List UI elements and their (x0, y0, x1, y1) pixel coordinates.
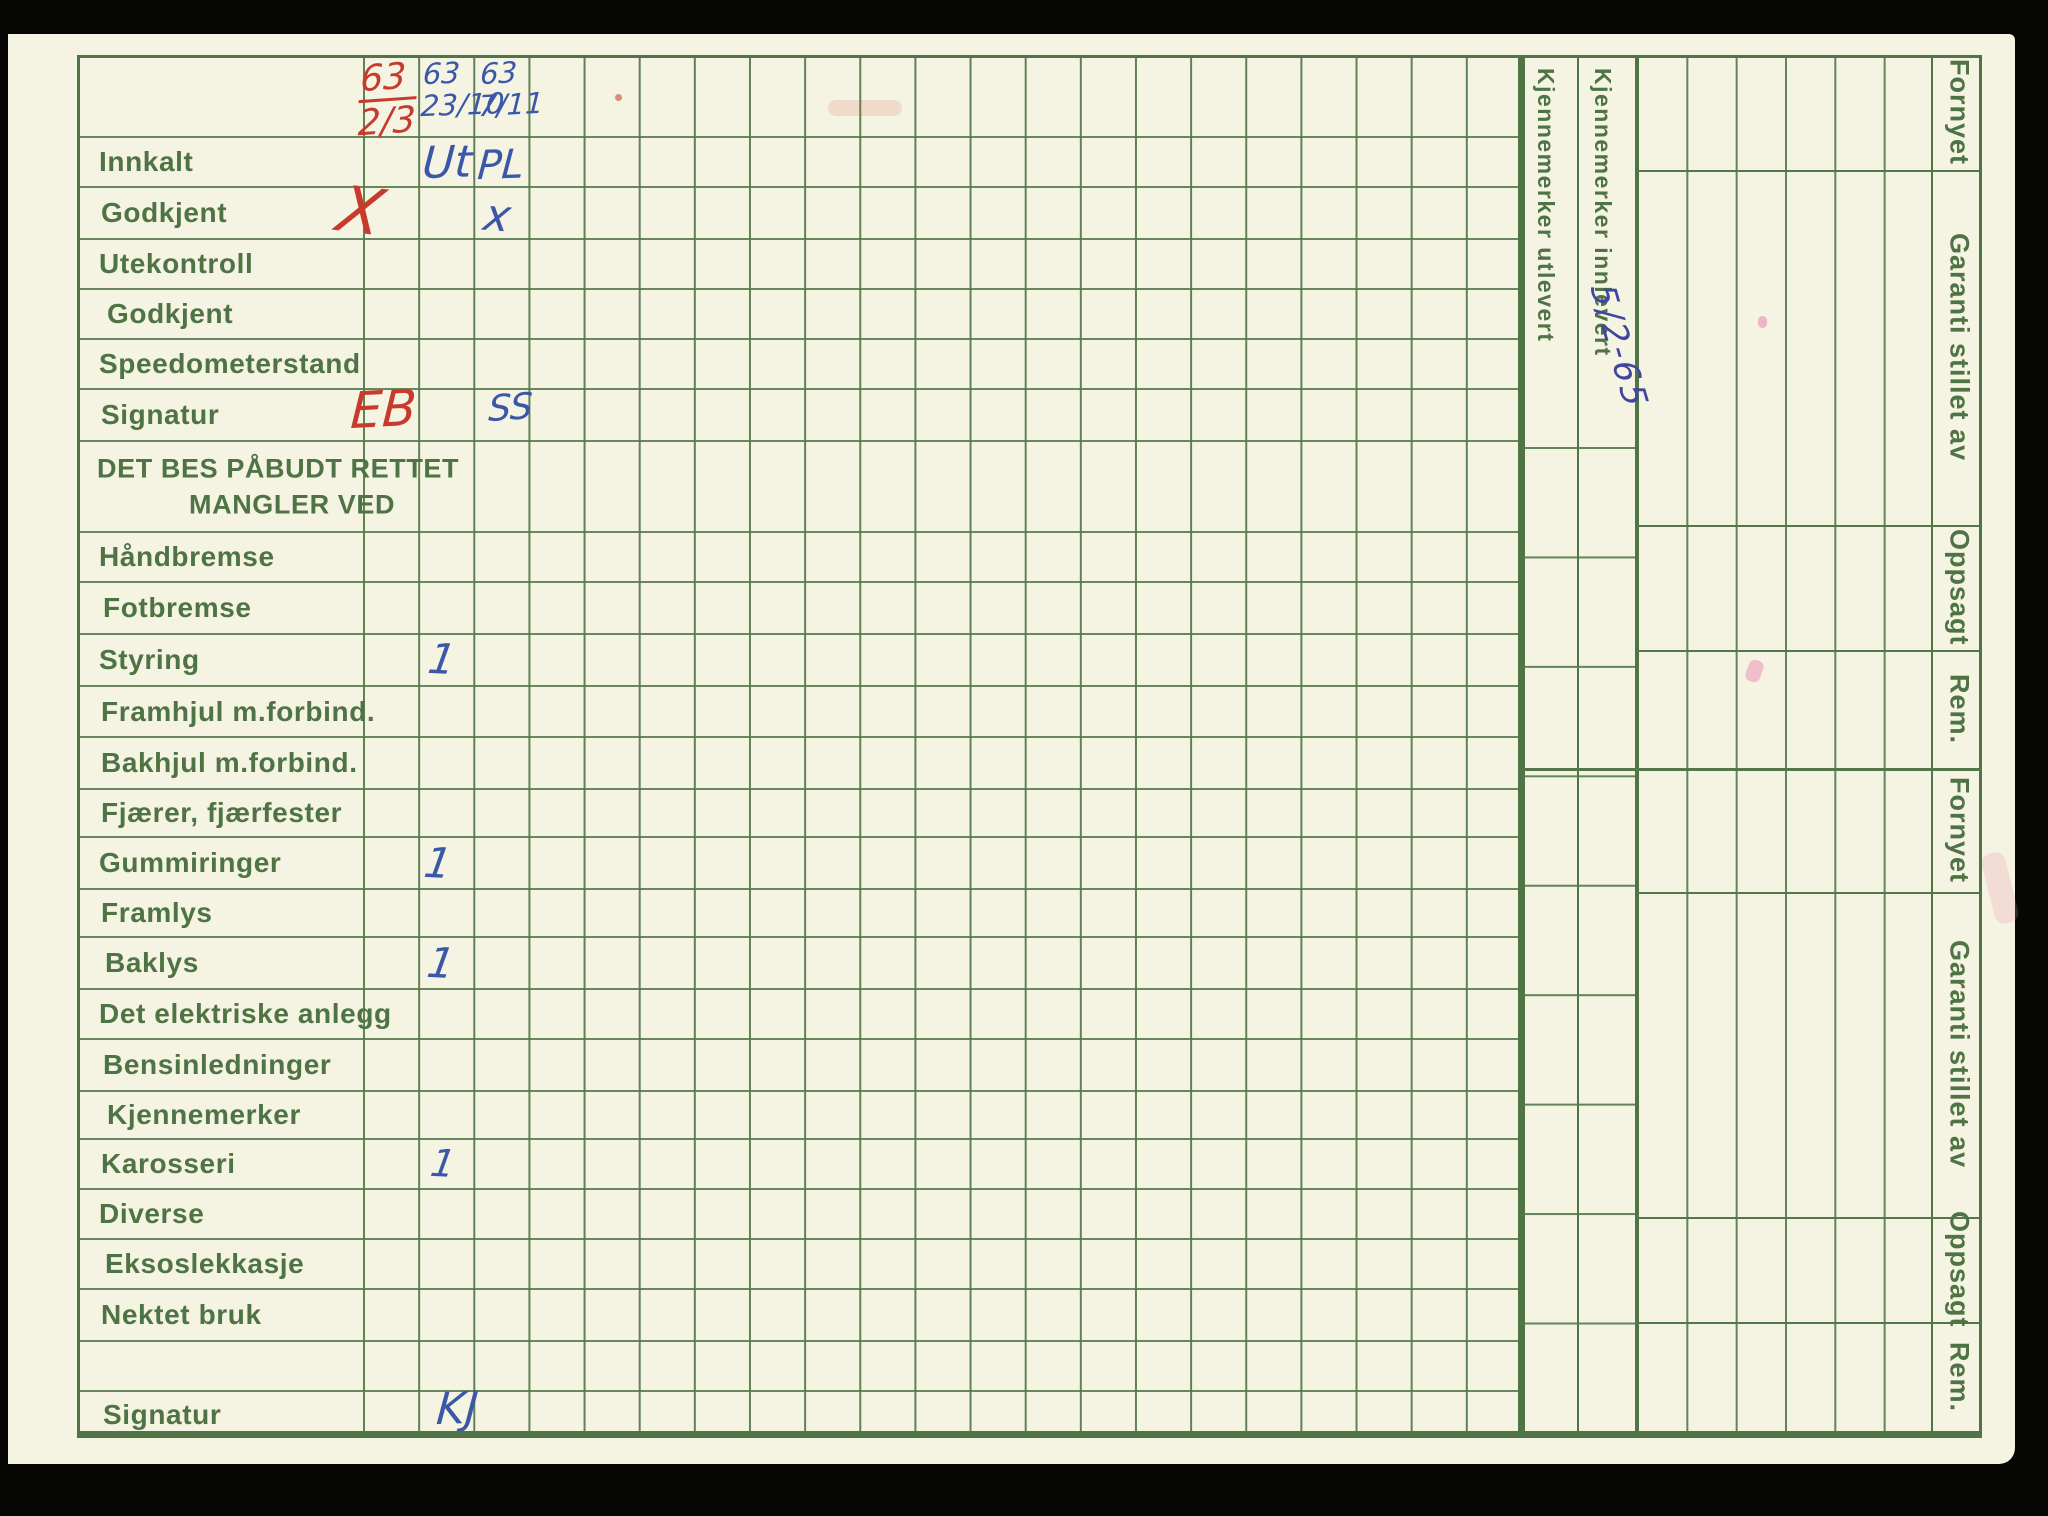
card-border (77, 55, 1982, 1438)
scanned-card-canvas: InnkaltGodkjentUtekontrollGodkjentSpeedo… (0, 0, 2048, 1516)
